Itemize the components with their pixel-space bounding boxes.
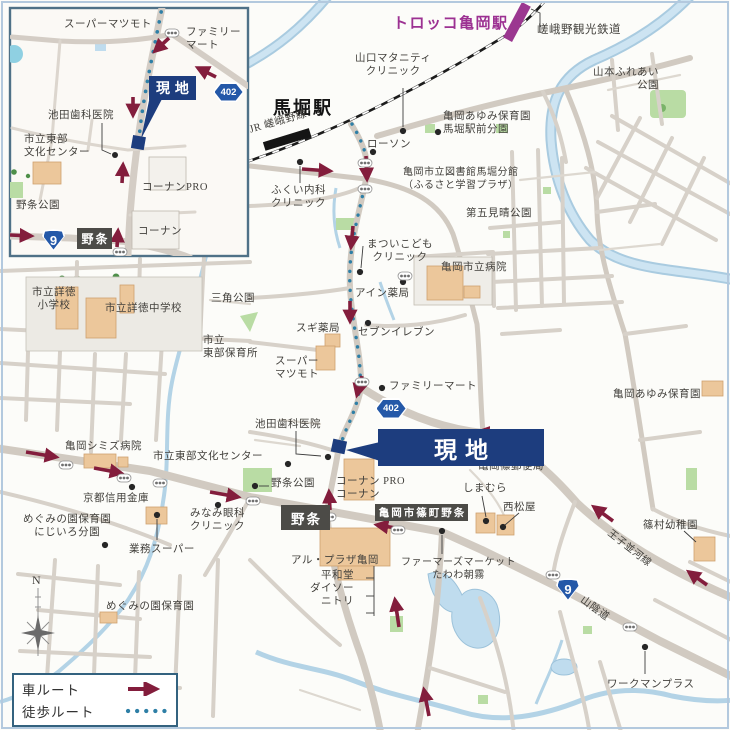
lawson-label: ローソン xyxy=(367,138,411,151)
matsui-kids-clinic-label: まついこども クリニック xyxy=(367,238,433,264)
car-route-legend-row: 車ルート xyxy=(22,679,168,699)
route-9-badge-inset: 9 xyxy=(42,229,65,251)
site-box-inset: 現地 xyxy=(149,76,196,100)
sagano-scenic-railway-label: 嵯峨野観光鉄道 xyxy=(537,23,621,37)
ikeda-dental-inset-label: 池田歯科医院 xyxy=(48,109,114,122)
yamamoto-fureai-park-label: 山本ふれあい 公園 xyxy=(593,66,659,92)
nojo-area-box-inset: 野条 xyxy=(77,228,112,249)
supermatsumoto-main-label: スーパー マツモト xyxy=(275,355,319,381)
kyoto-shinkin-bank-label: 京都信用金庫 xyxy=(83,492,149,505)
daigo-miharashi-park-label: 第五見晴公園 xyxy=(466,207,532,220)
minami-eye-clinic-label: みなみ眼科 クリニック xyxy=(190,507,245,533)
car-route-arrow-icon xyxy=(124,682,168,696)
shotoku-junior-high-label: 市立詳徳中学校 xyxy=(105,302,182,315)
municipal-hospital-label: 亀岡市立病院 xyxy=(441,261,507,274)
library-umahori-label: 亀岡市立図書館馬堀分館 （ふるさと学習プラザ） xyxy=(403,167,519,192)
labels-layer: スーパーマツモトファミリー マート池田歯科医院市立東部 文化センター野条公園コー… xyxy=(0,0,730,730)
ikeda-dental-main-label: 池田歯科医院 xyxy=(255,418,321,431)
shinomachi-nojo-area-box: 亀岡市篠町野条 xyxy=(375,504,468,521)
ayumi-nursery-right-label: 亀岡あゆみ保育園 xyxy=(613,388,701,401)
walk-route-dots-icon xyxy=(124,704,168,718)
shinomura-kindergarten-label: 篠村幼稚園 xyxy=(643,519,698,532)
al-plaza-kameoka-label: アル・プラザ亀岡 xyxy=(291,554,379,567)
sankaku-park-label: 三角公園 xyxy=(211,292,255,305)
megumi-nursery-label: めぐみの園保育園 xyxy=(106,600,194,613)
route-9-badge-inset-number: 9 xyxy=(44,231,64,250)
nishimatsuya-label: 西松屋 xyxy=(503,501,536,514)
site-box-main: 現地 xyxy=(378,429,544,466)
sanin-do-label: 山陰道 xyxy=(577,594,611,624)
farmers-market-label: ファーマーズマーケット たわわ朝霧 xyxy=(401,557,516,582)
compass-n-label: N xyxy=(32,573,41,588)
shotoku-elementary-label: 市立詳徳 小学校 xyxy=(32,286,76,312)
walk-route-legend-row: 徒歩ルート xyxy=(22,701,168,721)
torokko-station-label: トロッコ亀岡駅 xyxy=(393,15,509,34)
route-legend: 車ルート 徒歩ルート xyxy=(12,673,178,727)
yamaguchi-maternity-label: 山口マタニティ クリニック xyxy=(355,52,431,78)
route-402-badge-main-number: 402 xyxy=(377,400,406,418)
walk-route-label: 徒歩ルート xyxy=(22,701,95,721)
tobu-nursery-label: 市立 東部保育所 xyxy=(203,334,258,360)
supermatsumoto-inset-label: スーパーマツモト xyxy=(64,18,152,31)
route-9-badge-main-number: 9 xyxy=(558,580,579,600)
nojo-park-inset-label: 野条公園 xyxy=(16,199,60,212)
shimizu-hospital-label: 亀岡シミズ病院 xyxy=(65,440,142,453)
ain-pharmacy-label: アイン薬局 xyxy=(355,287,409,300)
map-canvas: スーパーマツモトファミリー マート池田歯科医院市立東部 文化センター野条公園コー… xyxy=(0,0,730,730)
kohnan-pro-inset-label: コーナンPRO xyxy=(142,181,208,194)
kohnan-main-label: コーナン PRO コーナン xyxy=(336,475,405,501)
route-402-badge-inset: 402 xyxy=(213,82,244,102)
route-402-badge-inset-number: 402 xyxy=(215,84,243,101)
kohnan-inset-label: コーナン xyxy=(138,225,182,238)
route-402-badge-main: 402 xyxy=(375,398,407,419)
megumi-nijiiro-label: めぐみの園保育園 にじいろ分園 xyxy=(23,513,111,539)
car-route-label: 車ルート xyxy=(22,679,80,699)
familymart-inset-label: ファミリー マート xyxy=(186,26,241,52)
oji-namikawa-line-label: 王子並河線 xyxy=(604,528,653,570)
ayumi-nursery-top-label: 亀岡あゆみ保育園 馬堀駅前分園 xyxy=(443,110,531,136)
heiwado-daiso-nitori-label: 平和堂 ダイソー ニトリ xyxy=(310,569,354,608)
sugi-pharmacy-label: スギ薬局 xyxy=(296,322,340,335)
shimamura-label: しまむら xyxy=(463,482,507,495)
gyomu-super-label: 業務スーパー xyxy=(129,543,195,556)
workman-plus-label: ワークマンプラス xyxy=(607,678,694,691)
bunka-center-main-label: 市立東部文化センター xyxy=(153,450,263,463)
nojo-park-main-label: 野条公園 xyxy=(271,477,315,490)
bunka-center-inset-label: 市立東部 文化センター xyxy=(24,133,90,159)
familymart-main-label: ファミリーマート xyxy=(389,380,477,393)
fukui-clinic-label: ふくい内科 クリニック xyxy=(271,184,326,210)
seven-eleven-label: セブンイレブン xyxy=(358,326,435,339)
nojo-area-box-main: 野条 xyxy=(281,505,330,530)
route-9-badge-main: 9 xyxy=(556,578,580,601)
